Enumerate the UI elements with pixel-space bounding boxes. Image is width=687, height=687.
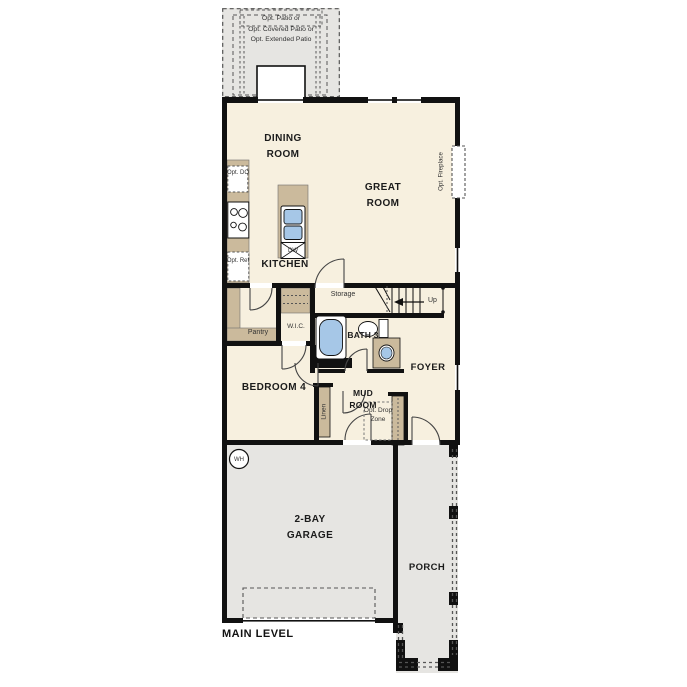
water-heater xyxy=(230,450,249,469)
floor-plan-drawing xyxy=(0,0,687,687)
toilet-bowl xyxy=(359,322,378,337)
bathtub xyxy=(320,320,343,356)
range xyxy=(228,202,249,238)
fireplace-outline xyxy=(452,146,465,198)
patio-stoop xyxy=(257,66,305,98)
hall-closet-shelf xyxy=(281,288,310,313)
sink-basin xyxy=(284,226,302,240)
optional-refrigerator xyxy=(228,252,249,281)
sink-basin xyxy=(284,210,302,225)
floor-plan: Opt. Patio or Opt. Covered Patio or Opt.… xyxy=(0,0,687,687)
optional-double-oven xyxy=(228,166,248,192)
pantry-shelf-bottom xyxy=(227,328,277,341)
vanity-sink xyxy=(381,347,392,359)
toilet-tank xyxy=(379,320,388,338)
